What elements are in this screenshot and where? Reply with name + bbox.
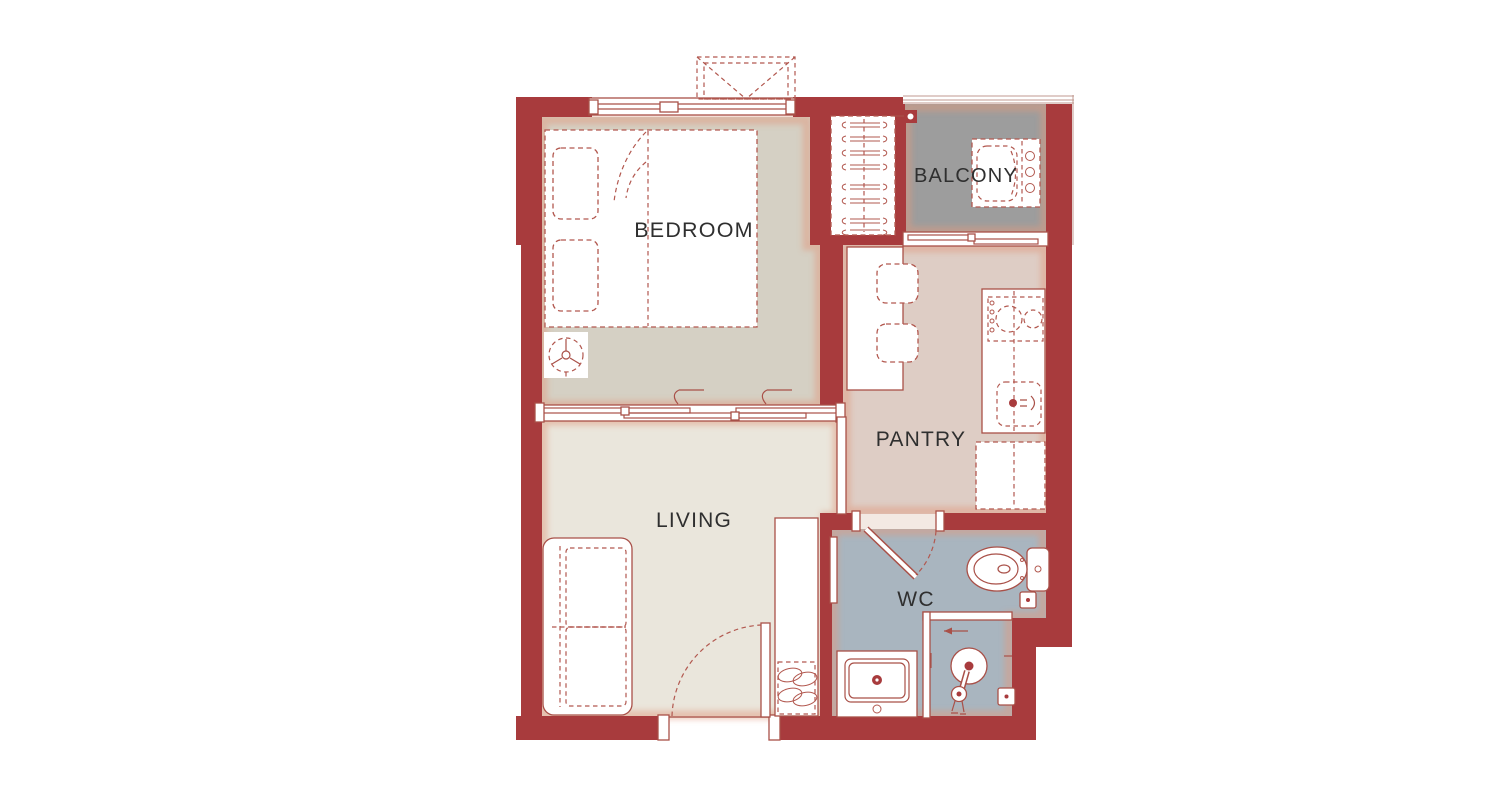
chair [877,264,918,303]
toilet [967,547,1049,591]
vanity-sink [837,651,917,717]
bedroom-window [589,98,795,115]
floor-plan-svg: BEDROOM BALCONY PANTRY LIVING WC [0,0,1500,785]
wardrobe-hangers [831,116,895,235]
towel-rail [830,537,837,603]
refrigerator [976,442,1045,509]
ac-condenser-unit [697,57,795,99]
sofa [543,538,632,715]
pantry-label: PANTRY [876,428,966,451]
pantry-door [837,417,846,514]
chair [877,324,918,362]
living-label: LIVING [656,509,732,532]
balcony-sliding-door [903,232,1048,246]
shoe-cabinet [775,518,818,716]
floor-drain-icon [998,688,1015,705]
sliding-partition [535,403,845,422]
floor-drain-icon [1020,592,1036,608]
bedroom-label: BEDROOM [634,218,754,242]
ceiling-fan-icon [544,332,588,378]
floor-plan: BEDROOM BALCONY PANTRY LIVING WC [0,0,1500,785]
balcony-label: BALCONY [914,165,1018,187]
wc-label: WC [897,588,934,611]
